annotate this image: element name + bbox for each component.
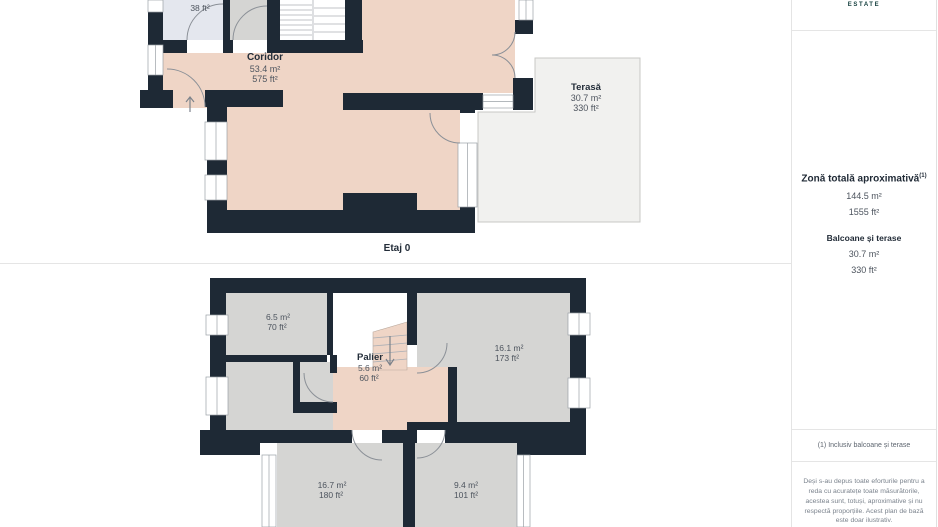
terasa-area-m: 30.7 m²	[571, 93, 602, 103]
coridor-area-ft: 575 ft²	[252, 74, 278, 84]
total-area-ft: 1555 ft²	[792, 207, 936, 217]
room161-area-ft: 173 ft²	[495, 353, 519, 363]
room167-area-ft: 180 ft²	[319, 490, 343, 500]
room167-area-m: 16.7 m²	[318, 480, 347, 490]
summary-sidebar: ESTATE Zonă totală aproximativă(1) 144.5…	[791, 0, 937, 527]
floor0-caption: Etaj 0	[384, 243, 411, 254]
room161-area-m: 16.1 m²	[495, 343, 524, 353]
footnote: (1) Inclusiv balcoane și terase	[792, 430, 936, 462]
floor1-palier-area	[333, 367, 448, 430]
room94-area-ft: 101 ft²	[454, 490, 478, 500]
brand-logo-text: ESTATE	[848, 2, 880, 8]
brand-logo: ESTATE	[792, 0, 936, 31]
total-area-m: 144.5 m²	[792, 191, 936, 201]
room65-area-ft: 70 ft²	[267, 322, 287, 332]
footnote-marker: (1)	[919, 173, 926, 179]
coridor-label: Coridor	[247, 52, 283, 63]
floor0-plan: 38 ft² Coridor 53.4 m² 575 ft² Terasă 30…	[140, 0, 640, 254]
floorplan-canvas: 38 ft² Coridor 53.4 m² 575 ft² Terasă 30…	[0, 0, 791, 527]
palier-area-m: 5.6 m²	[358, 363, 382, 373]
balconies-area-m: 30.7 m²	[792, 249, 936, 259]
area-summary-section: Zonă totală aproximativă(1) 144.5 m² 155…	[792, 31, 936, 430]
room65-area-m: 6.5 m²	[266, 312, 290, 322]
coridor-area-m: 53.4 m²	[250, 64, 281, 74]
terasa-area-ft: 330 ft²	[573, 103, 599, 113]
floor1-plan: 6.5 m² 70 ft² Palier 5.6 m² 60 ft² 16.1 …	[200, 278, 590, 527]
room94-area-m: 9.4 m²	[454, 480, 478, 490]
palier-area-ft: 60 ft²	[359, 373, 379, 383]
balconies-area-ft: 330 ft²	[792, 265, 936, 275]
total-area-title: Zonă totală aproximativă(1)	[792, 173, 936, 185]
floorplan-page: 38 ft² Coridor 53.4 m² 575 ft² Terasă 30…	[0, 0, 938, 527]
floor1-room-small	[226, 362, 333, 430]
small-room-area-ft: 38 ft²	[190, 3, 210, 13]
balconies-title: Balcoane și terase	[792, 233, 936, 243]
palier-label: Palier	[357, 352, 383, 363]
terasa-label: Terasă	[571, 82, 602, 93]
disclaimer: Deși s-au depus toate eforturile pentru …	[792, 462, 936, 526]
